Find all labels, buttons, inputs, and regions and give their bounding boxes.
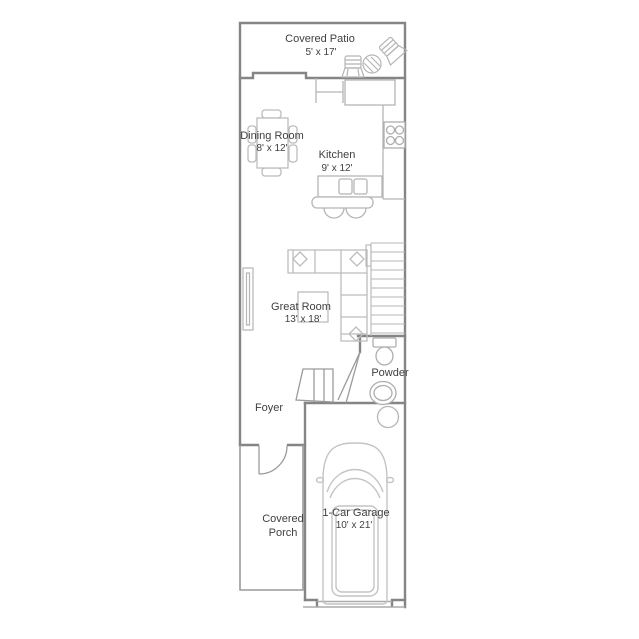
patio-table-icon xyxy=(363,55,381,73)
powder-sink-icon xyxy=(370,382,396,405)
floor-plan-page: Covered Patio 5' x 17' Dining Room 8' x … xyxy=(0,0,639,639)
bar-stools-icon xyxy=(324,208,366,218)
patio-dims: 5' x 17' xyxy=(305,47,336,58)
powder-label: Powder xyxy=(371,367,409,379)
covered-porch: Covered Porch xyxy=(262,513,304,539)
garage-label: 1-Car Garage xyxy=(322,507,389,519)
toilet-icon xyxy=(373,338,396,365)
kitchen-label: Kitchen xyxy=(319,149,356,161)
water-heater-icon xyxy=(378,407,399,428)
foyer: Foyer xyxy=(255,369,333,414)
great-room: Great Room 13' x 18' xyxy=(243,250,367,341)
foyer-label: Foyer xyxy=(255,402,283,414)
covered-patio: Covered Patio 5' x 17' xyxy=(285,33,407,77)
great-room-dims: 13' x 18' xyxy=(285,314,322,325)
powder-room: Powder xyxy=(338,338,409,405)
dining-room: Dining Room 8' x 12' xyxy=(240,110,304,176)
porch-label-line2: Porch xyxy=(269,527,298,539)
floor-plan: Covered Patio 5' x 17' Dining Room 8' x … xyxy=(0,0,639,639)
window-icon xyxy=(243,268,253,330)
patio-chair-2-icon xyxy=(376,35,406,65)
garage: 1-Car Garage 10' x 21' xyxy=(317,407,399,605)
great-room-label: Great Room xyxy=(271,301,331,313)
counter-line xyxy=(383,105,405,199)
patio-label: Covered Patio xyxy=(285,33,355,45)
entry-door-icon xyxy=(259,446,287,474)
kitchen: Kitchen 9' x 12' xyxy=(312,78,405,218)
dining-dims: 8' x 12' xyxy=(256,143,287,154)
kitchen-island-icon xyxy=(312,176,382,208)
porch-label-line1: Covered xyxy=(262,513,304,525)
garage-dims: 10' x 21' xyxy=(336,520,373,531)
kitchen-dims: 9' x 12' xyxy=(321,163,352,174)
cabinet-lines xyxy=(316,78,343,103)
stove-icon xyxy=(384,122,405,148)
patio-chair-icon xyxy=(342,56,364,77)
refrigerator-icon xyxy=(345,80,395,105)
stairs-icon xyxy=(366,243,405,336)
powder-door-icon xyxy=(338,352,360,403)
dining-label: Dining Room xyxy=(240,130,304,142)
closet-icon xyxy=(296,369,333,402)
